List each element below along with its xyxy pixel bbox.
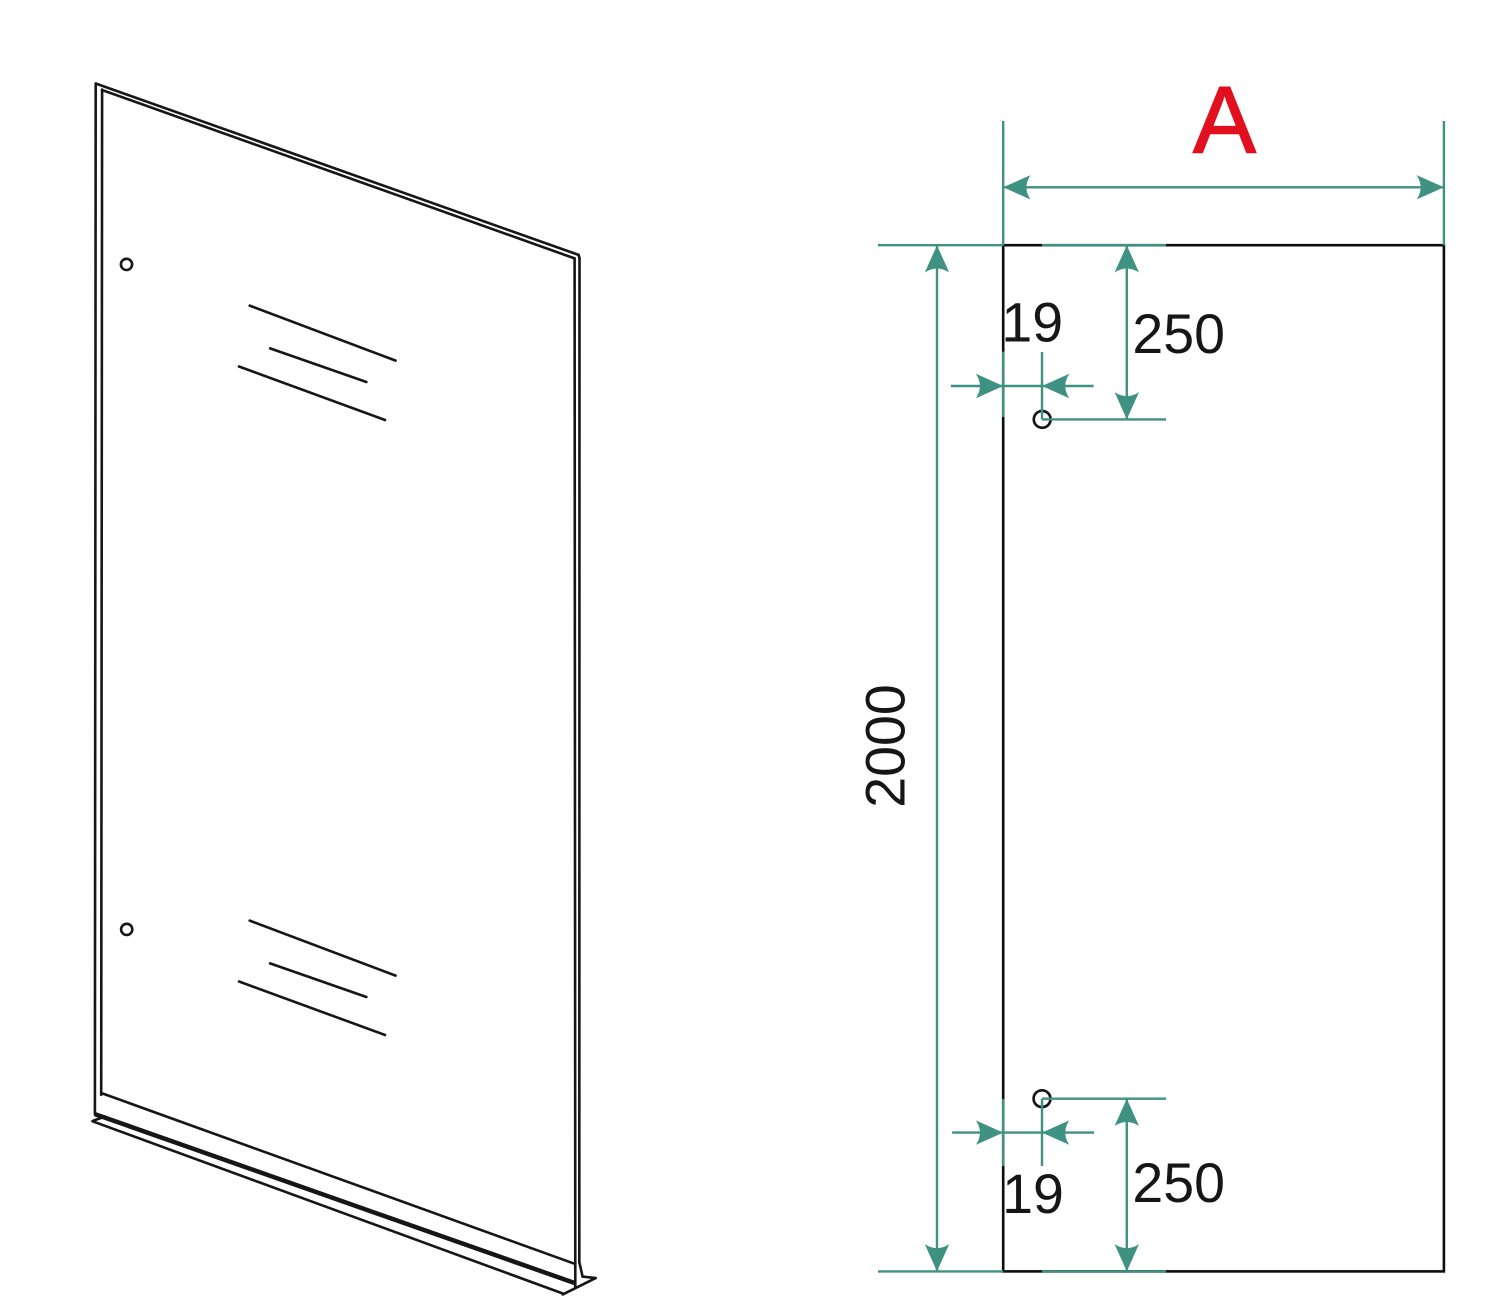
svg-text:A: A: [1193, 68, 1256, 174]
svg-text:2000: 2000: [855, 684, 917, 807]
svg-text:19: 19: [1001, 292, 1063, 354]
svg-text:19: 19: [1002, 1163, 1064, 1225]
svg-text:250: 250: [1132, 1152, 1225, 1214]
svg-text:250: 250: [1132, 303, 1225, 365]
